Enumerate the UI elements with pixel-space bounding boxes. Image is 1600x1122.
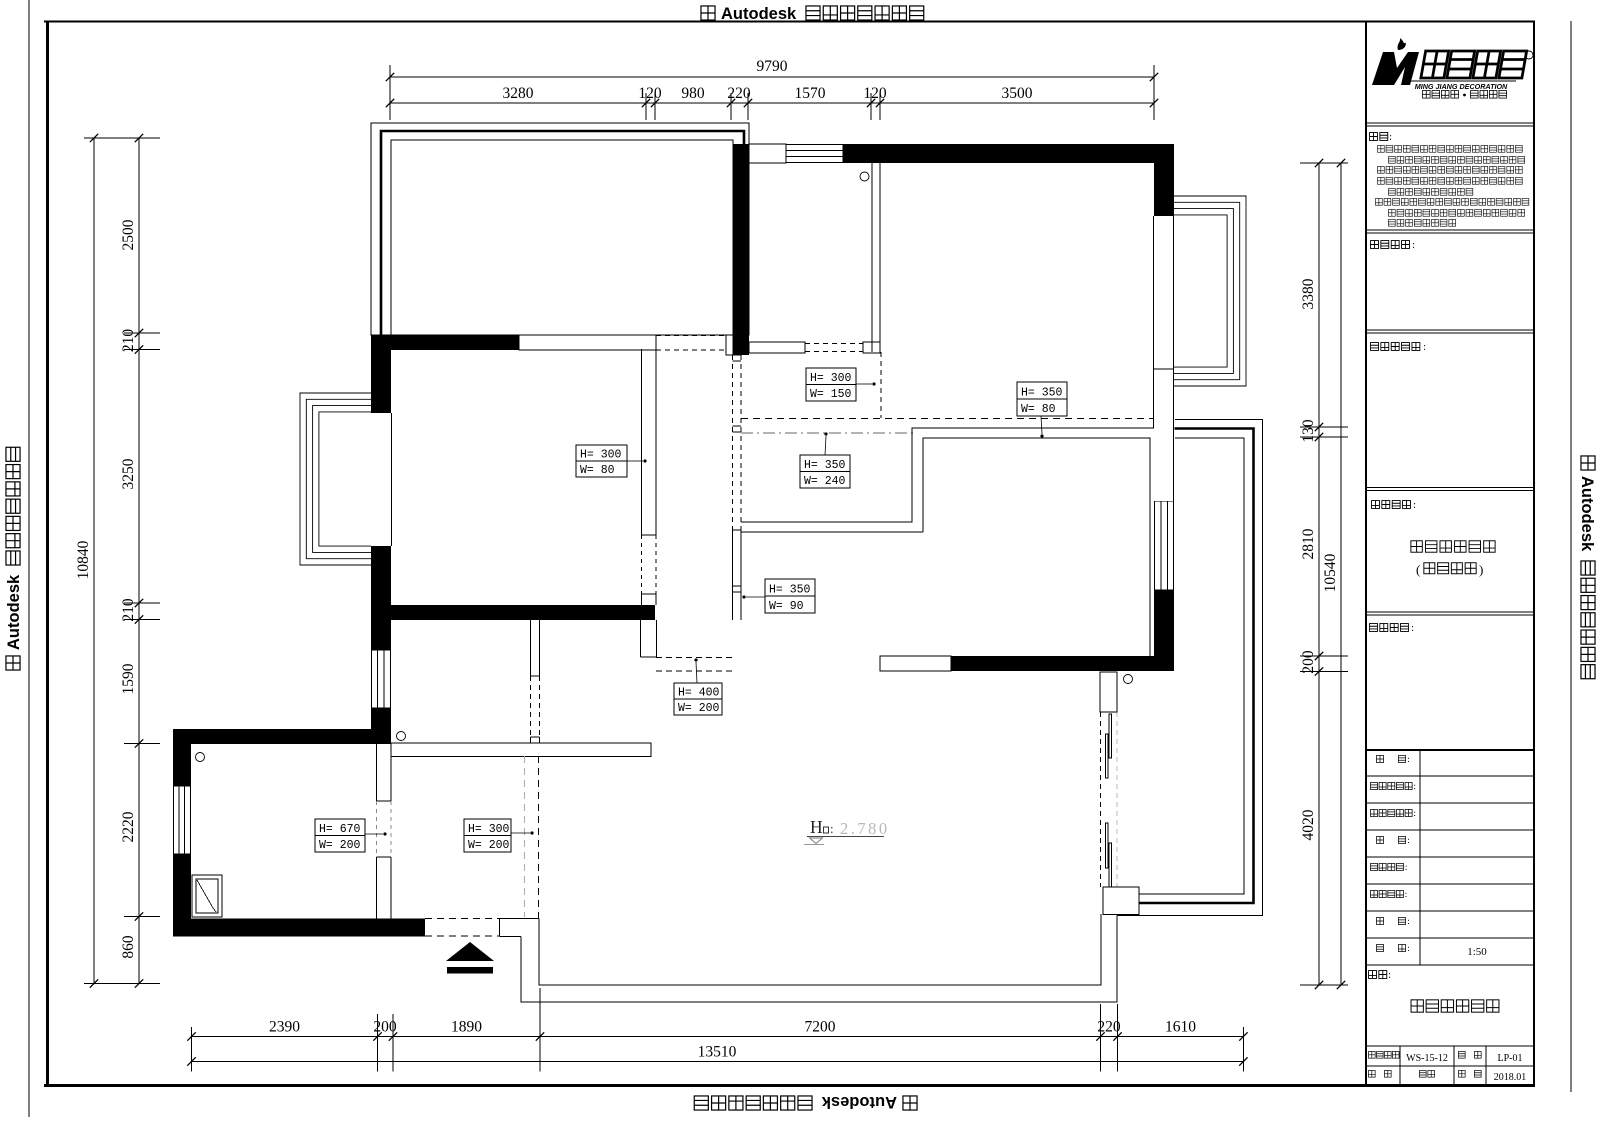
svg-text:860: 860 [120,935,137,959]
svg-text:W= 80: W= 80 [1021,403,1056,416]
svg-text:H= 300: H= 300 [468,823,510,836]
svg-text:1590: 1590 [120,663,137,694]
svg-text:Autodesk: Autodesk [5,574,23,650]
svg-text:200: 200 [1300,650,1317,674]
svg-text:W= 150: W= 150 [810,388,852,401]
svg-text:120: 120 [863,85,887,102]
svg-text:LP-01: LP-01 [1498,1053,1523,1064]
svg-text:210: 210 [120,329,137,353]
svg-text:W= 200: W= 200 [468,839,510,852]
svg-text:3280: 3280 [503,85,534,102]
svg-text:1:50: 1:50 [1467,946,1487,958]
svg-text:H= 300: H= 300 [580,449,622,462]
svg-text:1890: 1890 [451,1019,482,1036]
svg-text:9790: 9790 [757,58,788,75]
svg-text:H= 300: H= 300 [810,372,852,385]
svg-text:H= 350: H= 350 [1021,387,1063,400]
svg-text:2018.01: 2018.01 [1494,1072,1527,1083]
svg-text:(: ( [1416,562,1420,577]
svg-text:1610: 1610 [1165,1019,1196,1036]
svg-text:): ) [1479,562,1483,577]
svg-text:2.780: 2.780 [840,819,890,838]
svg-text:2810: 2810 [1300,528,1317,559]
svg-text:210: 210 [120,598,137,622]
svg-text:Autodesk: Autodesk [1578,476,1596,552]
svg-text:10540: 10540 [1322,553,1339,592]
svg-text::: : [830,821,834,836]
svg-text:7200: 7200 [805,1019,836,1036]
svg-text:W= 90: W= 90 [769,600,804,613]
svg-text:4020: 4020 [1300,809,1317,840]
svg-text:MING JIANG DECORATION: MING JIANG DECORATION [1415,82,1508,91]
svg-text:W= 240: W= 240 [804,475,846,488]
svg-text:3250: 3250 [120,458,137,489]
svg-text:10840: 10840 [75,540,92,579]
svg-text:1570: 1570 [795,85,826,102]
svg-text:H= 670: H= 670 [319,823,361,836]
svg-text:2220: 2220 [120,811,137,842]
svg-text:3380: 3380 [1300,278,1317,309]
svg-text:H= 400: H= 400 [678,687,720,700]
svg-text:Autodesk: Autodesk [721,5,797,23]
svg-text:13510: 13510 [698,1044,737,1061]
svg-text:WS-15-12: WS-15-12 [1406,1053,1448,1064]
svg-text:2500: 2500 [120,219,137,250]
svg-text:W= 80: W= 80 [580,464,615,477]
svg-text:H: H [810,817,823,837]
svg-text:130: 130 [1300,419,1317,443]
svg-text:3500: 3500 [1002,85,1033,102]
svg-text:H= 350: H= 350 [769,584,811,597]
svg-text:W= 200: W= 200 [319,839,361,852]
svg-text:120: 120 [638,85,662,102]
svg-text:2390: 2390 [269,1019,300,1036]
svg-text:980: 980 [681,85,705,102]
svg-text:W= 200: W= 200 [678,702,720,715]
svg-text:H= 350: H= 350 [804,459,846,472]
svg-text:Autodesk: Autodesk [821,1093,897,1111]
